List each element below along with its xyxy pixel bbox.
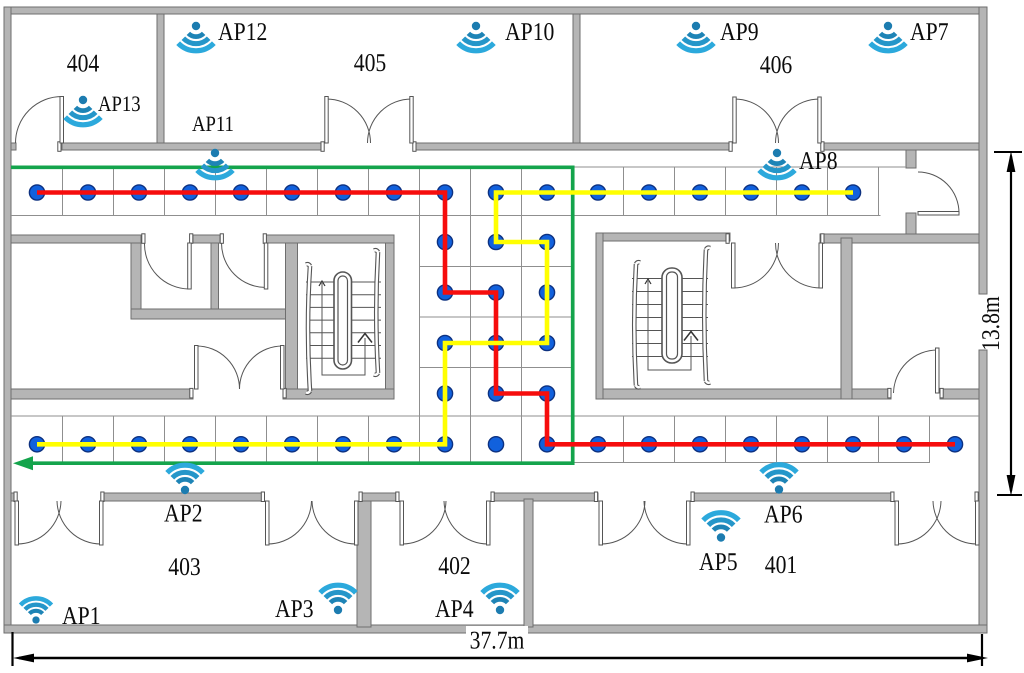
svg-text:AP8: AP8: [799, 146, 838, 175]
svg-text:404: 404: [67, 49, 100, 78]
svg-text:AP3: AP3: [275, 594, 314, 623]
svg-text:AP9: AP9: [720, 17, 759, 46]
svg-text:403: 403: [168, 552, 201, 581]
svg-text:AP13: AP13: [98, 91, 141, 116]
svg-text:AP4: AP4: [435, 594, 474, 623]
svg-text:402: 402: [438, 551, 471, 580]
svg-text:37.7m: 37.7m: [470, 626, 525, 655]
svg-text:AP11: AP11: [192, 111, 234, 136]
svg-text:406: 406: [760, 50, 793, 79]
svg-text:AP5: AP5: [699, 547, 738, 576]
svg-text:AP2: AP2: [164, 499, 203, 528]
svg-text:401: 401: [765, 550, 798, 579]
svg-text:AP6: AP6: [764, 500, 803, 529]
svg-text:AP1: AP1: [62, 601, 101, 630]
svg-text:AP12: AP12: [218, 17, 267, 46]
svg-text:405: 405: [354, 48, 387, 77]
svg-text:13.8m: 13.8m: [976, 296, 1005, 351]
svg-text:AP10: AP10: [505, 17, 554, 46]
svg-text:AP7: AP7: [910, 17, 949, 46]
